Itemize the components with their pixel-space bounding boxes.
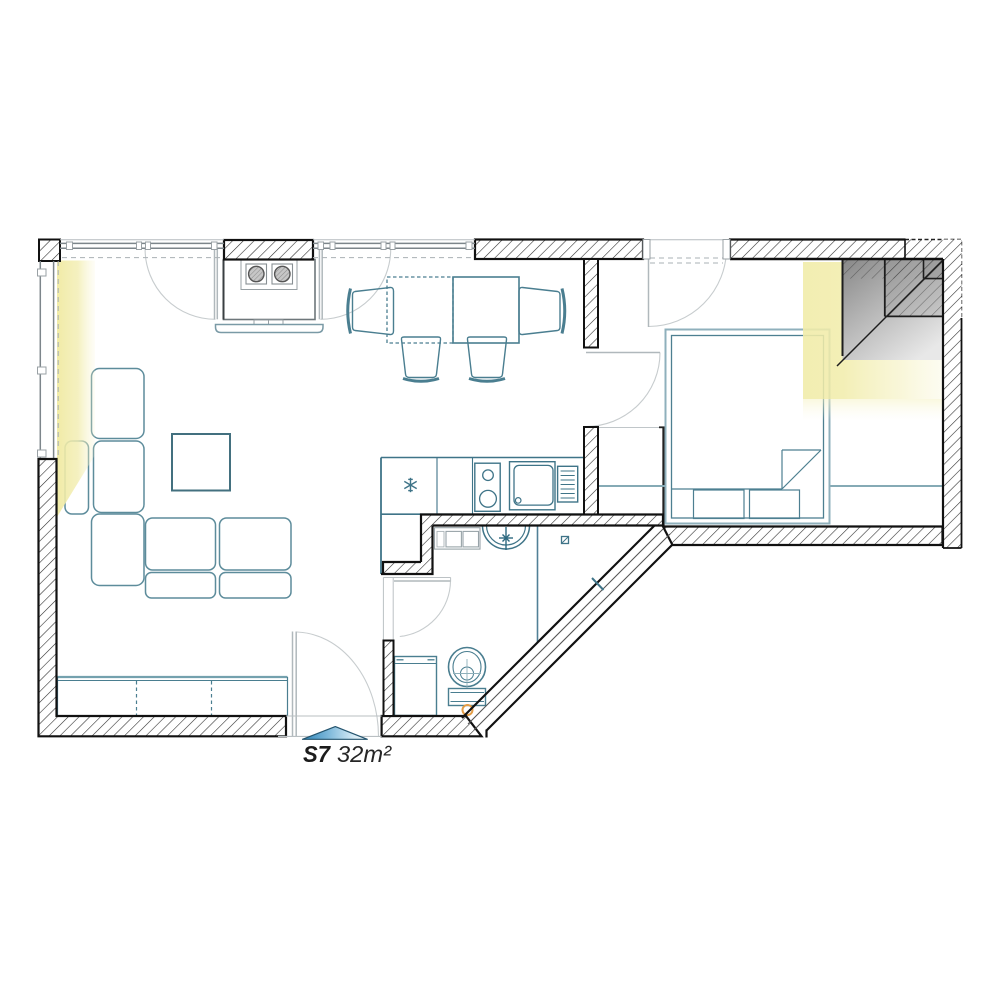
svg-text:S7: S7 — [303, 741, 331, 767]
svg-text:32m²: 32m² — [337, 741, 392, 767]
